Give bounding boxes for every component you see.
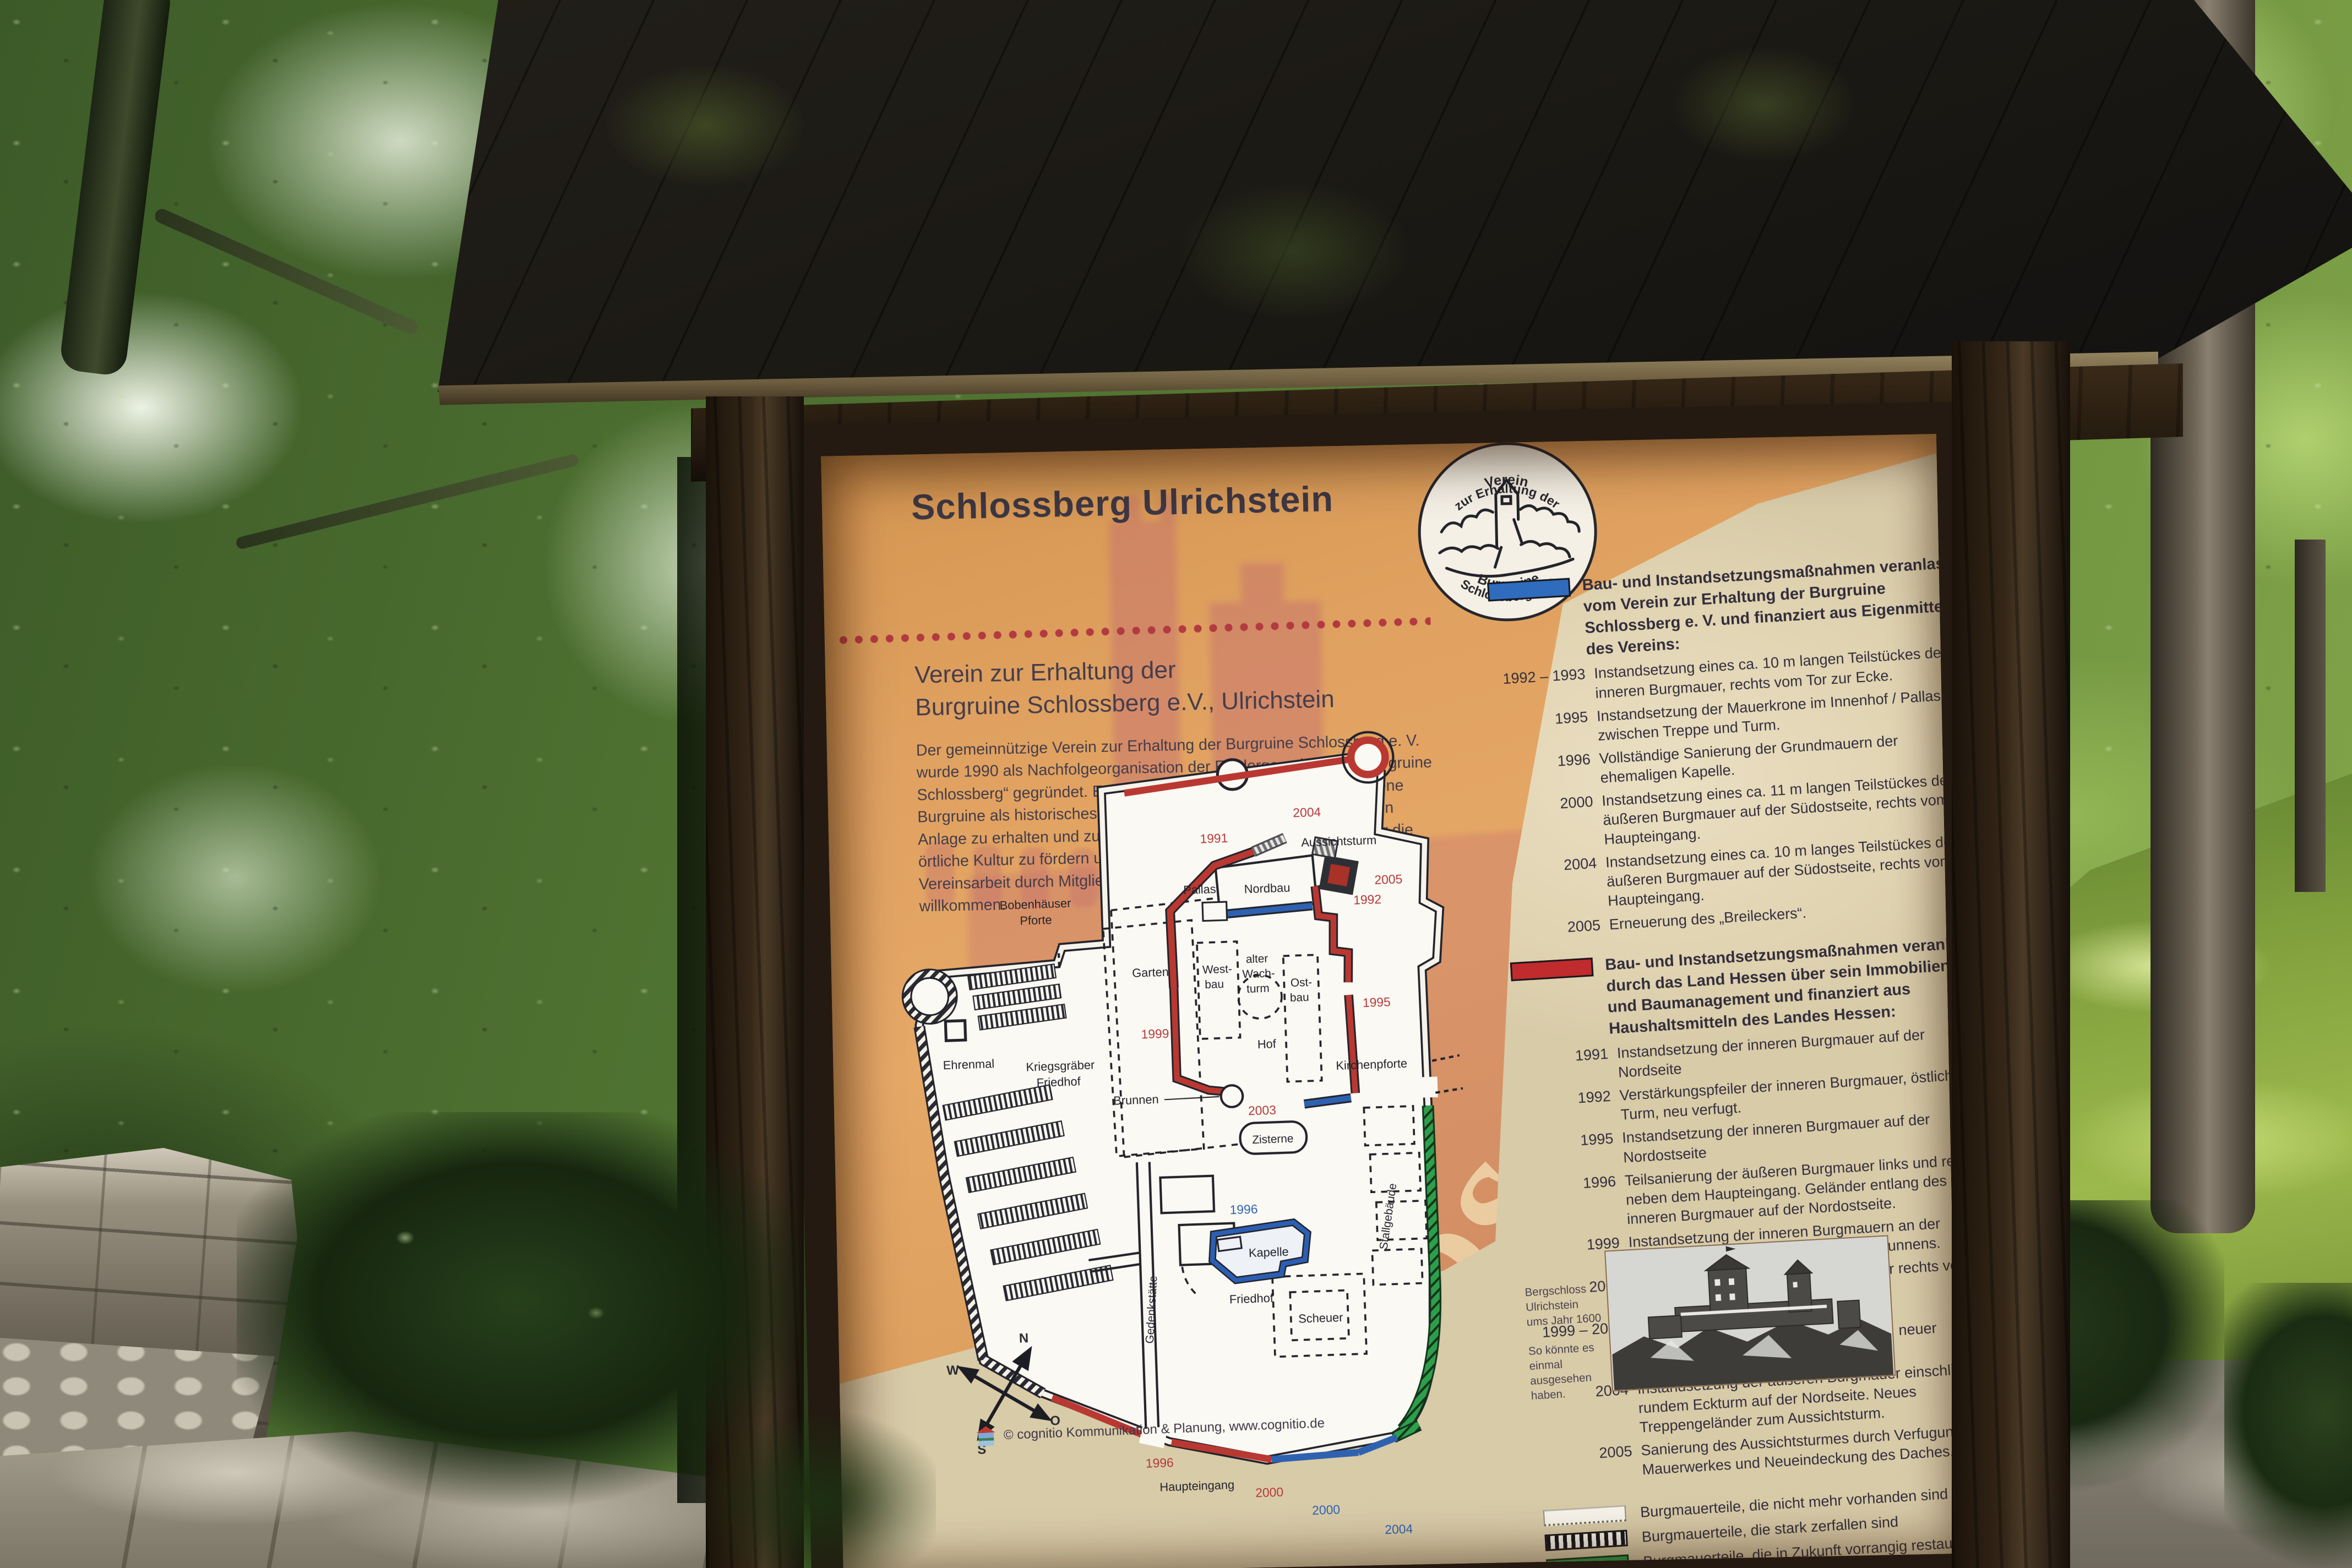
map-legend: Burgmauerteile, die nicht mehr vorhanden… [1543, 1480, 1959, 1568]
cognitio-logo-icon [976, 1426, 996, 1446]
label-scheuer: Scheuer [1298, 1310, 1343, 1326]
wooden-post-right [1952, 341, 2070, 1568]
page-title: Schlossberg Ulrichstein [911, 478, 1333, 527]
legend-swatch-gone-icon [1543, 1505, 1627, 1527]
year-1999: 1999 [1141, 1026, 1169, 1042]
year-2000-blue: 2000 [1312, 1502, 1341, 1517]
brunnen-well [1221, 1085, 1243, 1108]
compass-w: W [946, 1363, 960, 1378]
label-ostbau-2: bau [1290, 991, 1309, 1004]
red-wall-swatch-icon [1510, 957, 1594, 981]
tree-trunk-thin [2295, 540, 2326, 892]
year-2004-top: 2004 [1293, 804, 1321, 820]
label-haupteingang: Haupteingang [1159, 1478, 1235, 1494]
engraving-caption: Bergschloss Ulrichstein ums Jahr 1600 So… [1525, 1281, 1608, 1418]
label-hof: Hof [1257, 1037, 1277, 1051]
label-brunnen: Brunnen [1113, 1092, 1159, 1108]
label-wachturm-2: Wach- [1242, 967, 1275, 981]
label-ehrenmal: Ehrenmal [943, 1057, 994, 1072]
year-1992: 1992 [1353, 892, 1382, 907]
year-1991: 1991 [1200, 831, 1228, 846]
year-2000-red: 2000 [1255, 1485, 1284, 1500]
year-1995: 1995 [1363, 994, 1391, 1010]
subtitle: Verein zur Erhaltung der Burgruine Schlo… [914, 651, 1335, 724]
label-pallas: Pallas [1183, 882, 1216, 897]
castle-engraving-image [1604, 1235, 1896, 1391]
photo-scene: Schlossberg Schlossberg Ulrichstein Vere… [0, 0, 2352, 1568]
kirchenpforte-gate-gap [1414, 1076, 1438, 1098]
label-kriegsgraeber-1: Kriegsgräber [1026, 1058, 1095, 1074]
label-ostbau-1: Ost- [1291, 976, 1313, 989]
label-kriegsgraeber-2: Friedhof [1036, 1074, 1081, 1090]
label-wachturm-3: turm [1246, 982, 1270, 995]
label-zisterne: Zisterne [1252, 1133, 1294, 1147]
label-nordbau: Nordbau [1244, 880, 1290, 896]
north-corner-tower [1351, 739, 1386, 775]
label-garten: Garten [1132, 965, 1169, 980]
foreground-leaves [705, 1409, 936, 1568]
label-aussichtsturm: Aussichtsturm [1301, 833, 1377, 850]
label-kirchenpforte: Kirchenpforte [1336, 1057, 1407, 1072]
information-sign: Schlossberg Schlossberg Ulrichstein Vere… [788, 401, 1991, 1568]
hessen-header-text: Bau- und Instandsetzungsmaßnahmen veranl… [1604, 932, 1958, 1039]
label-friedhof: Friedhof [1229, 1291, 1274, 1306]
compass-n: N [1019, 1331, 1028, 1346]
sign-panel: Schlossberg Schlossberg Ulrichstein Vere… [821, 434, 1958, 1568]
legend-swatch-restore-icon [1546, 1555, 1630, 1568]
year-1996-red: 1996 [1145, 1455, 1174, 1471]
label-wachturm-1: alter [1245, 952, 1268, 966]
legend-swatch-decayed-icon [1544, 1530, 1628, 1551]
label-bobenhaeuser-2: Pforte [1020, 913, 1052, 928]
label-westbau-1: West- [1202, 963, 1233, 977]
year-2004-blue: 2004 [1385, 1521, 1413, 1537]
small-stair-box [1202, 902, 1227, 921]
label-bobenhaeuser-1: Bobenhäuser [999, 896, 1071, 912]
blue-wall-swatch-icon [1487, 578, 1571, 602]
year-2005: 2005 [1374, 872, 1403, 887]
year-2003: 2003 [1248, 1103, 1277, 1118]
label-westbau-2: bau [1205, 978, 1224, 991]
verein-items: 1992 – 1993Instandsetzung eines ca. 10 m… [1493, 642, 1959, 940]
ehrenmal-monument [945, 1021, 966, 1041]
year-1996-blue: 1996 [1229, 1202, 1258, 1217]
label-kapelle: Kapelle [1249, 1245, 1289, 1260]
bush-bottom-right [2224, 1283, 2352, 1568]
site-plan-map: N W O S Bobenhäuser Pforte Ehrenmal Krie… [876, 709, 1522, 1567]
